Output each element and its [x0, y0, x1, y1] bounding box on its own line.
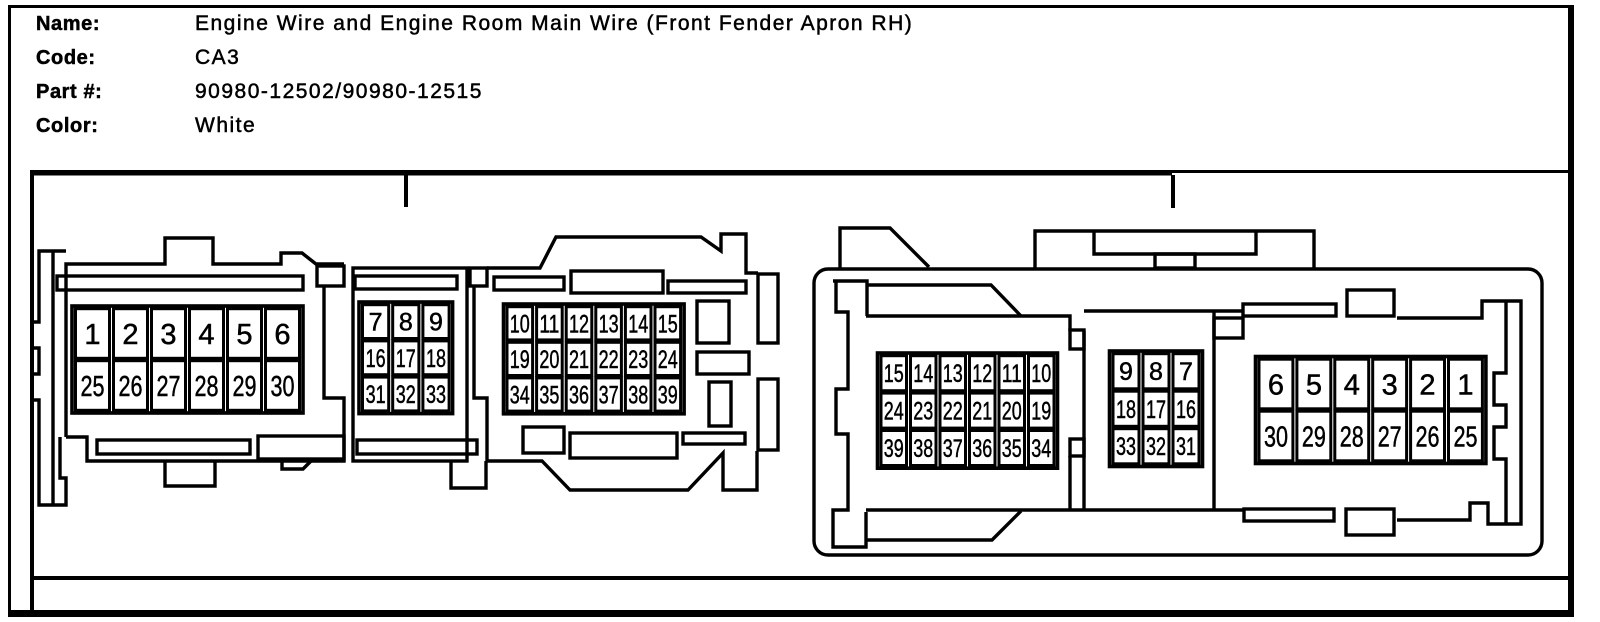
svg-text:22: 22 [943, 398, 963, 426]
svg-text:29: 29 [1302, 422, 1326, 454]
svg-text:37: 37 [599, 382, 619, 410]
svg-text:33: 33 [1116, 433, 1136, 461]
svg-text:10: 10 [1031, 360, 1051, 388]
svg-text:16: 16 [366, 345, 386, 373]
svg-text:17: 17 [396, 345, 416, 373]
svg-text:30: 30 [1264, 422, 1288, 454]
svg-text:38: 38 [628, 382, 648, 410]
svg-text:21: 21 [972, 398, 992, 426]
svg-text:3: 3 [1382, 370, 1398, 402]
svg-text:23: 23 [913, 398, 933, 426]
svg-text:Name:: Name: [36, 13, 100, 35]
svg-text:13: 13 [943, 360, 963, 388]
svg-text:27: 27 [1378, 422, 1402, 454]
svg-text:31: 31 [366, 381, 386, 409]
svg-text:24: 24 [884, 398, 904, 426]
svg-text:19: 19 [1031, 398, 1051, 426]
svg-text:6: 6 [1268, 370, 1284, 402]
svg-text:9: 9 [429, 309, 443, 337]
svg-text:26: 26 [119, 371, 143, 403]
svg-text:10: 10 [510, 310, 530, 338]
svg-text:30: 30 [271, 371, 295, 403]
svg-text:11: 11 [1002, 360, 1022, 388]
svg-text:Engine Wire and Engine Room Ma: Engine Wire and Engine Room Main Wire (F… [195, 12, 913, 35]
svg-text:17: 17 [1146, 396, 1166, 424]
svg-text:2: 2 [1419, 370, 1435, 402]
svg-text:16: 16 [1176, 396, 1196, 424]
svg-text:33: 33 [426, 381, 446, 409]
svg-text:32: 32 [396, 381, 416, 409]
svg-text:32: 32 [1146, 433, 1166, 461]
svg-text:1: 1 [84, 319, 100, 351]
svg-text:39: 39 [658, 382, 678, 410]
svg-text:12: 12 [972, 360, 992, 388]
svg-text:34: 34 [510, 382, 530, 410]
svg-text:29: 29 [233, 371, 257, 403]
svg-text:8: 8 [399, 309, 413, 337]
svg-text:20: 20 [1002, 398, 1022, 426]
svg-text:White: White [195, 114, 256, 137]
svg-text:Code:: Code: [36, 47, 96, 69]
svg-text:25: 25 [81, 371, 105, 403]
svg-text:18: 18 [1116, 396, 1136, 424]
svg-text:23: 23 [628, 346, 648, 374]
svg-text:18: 18 [426, 345, 446, 373]
svg-text:15: 15 [658, 310, 678, 338]
svg-text:1: 1 [1457, 370, 1473, 402]
svg-text:19: 19 [510, 346, 530, 374]
svg-text:37: 37 [943, 435, 963, 463]
svg-text:3: 3 [160, 319, 176, 351]
svg-text:25: 25 [1454, 422, 1478, 454]
svg-text:12: 12 [569, 310, 589, 338]
svg-text:11: 11 [539, 310, 559, 338]
svg-text:14: 14 [913, 360, 933, 388]
svg-text:36: 36 [972, 435, 992, 463]
svg-text:7: 7 [1179, 358, 1193, 386]
svg-text:4: 4 [198, 319, 214, 351]
svg-text:35: 35 [1002, 435, 1022, 463]
svg-text:28: 28 [1340, 422, 1364, 454]
svg-text:24: 24 [658, 346, 678, 374]
svg-text:6: 6 [274, 319, 290, 351]
svg-text:8: 8 [1149, 358, 1163, 386]
svg-text:22: 22 [599, 346, 619, 374]
svg-text:CA3: CA3 [195, 46, 240, 69]
svg-text:34: 34 [1031, 435, 1051, 463]
svg-text:7: 7 [369, 309, 383, 337]
svg-text:39: 39 [884, 435, 904, 463]
svg-text:36: 36 [569, 382, 589, 410]
svg-text:28: 28 [195, 371, 219, 403]
svg-text:13: 13 [599, 310, 619, 338]
svg-text:Color:: Color: [36, 115, 98, 137]
svg-text:35: 35 [539, 382, 559, 410]
svg-text:9: 9 [1119, 358, 1133, 386]
svg-text:2: 2 [122, 319, 138, 351]
svg-text:21: 21 [569, 346, 589, 374]
svg-text:4: 4 [1344, 370, 1360, 402]
svg-text:5: 5 [236, 319, 252, 351]
svg-text:20: 20 [539, 346, 559, 374]
svg-text:14: 14 [628, 310, 648, 338]
svg-text:15: 15 [884, 360, 904, 388]
svg-text:5: 5 [1306, 370, 1322, 402]
svg-text:Part #:: Part #: [36, 81, 102, 103]
svg-text:90980-12502/90980-12515: 90980-12502/90980-12515 [195, 80, 483, 103]
svg-text:26: 26 [1416, 422, 1440, 454]
svg-text:38: 38 [913, 435, 933, 463]
svg-text:27: 27 [157, 371, 181, 403]
svg-text:31: 31 [1176, 433, 1196, 461]
